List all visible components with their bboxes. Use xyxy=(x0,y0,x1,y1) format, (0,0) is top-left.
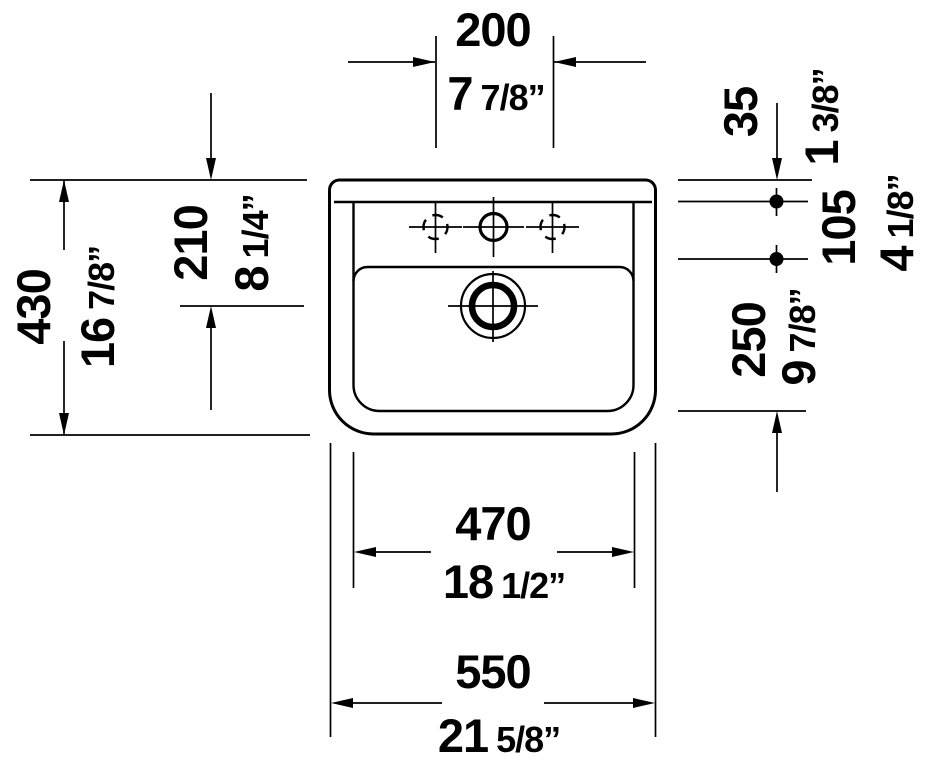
tap-holes xyxy=(409,197,579,257)
arrow-left-icon xyxy=(354,547,376,557)
dim-250-mm: 250 xyxy=(722,302,775,377)
dim-430-mm: 430 xyxy=(7,269,60,344)
arrow-right-icon xyxy=(413,57,435,67)
dim-210-inch: 81/4” xyxy=(225,194,278,291)
dim-fixing-to-bottom: 250 97/8” xyxy=(678,288,825,492)
dim-top-offset: 35 13/8” xyxy=(678,68,848,180)
dim-200-inch: 77/8” xyxy=(447,67,544,120)
arrow-down-icon xyxy=(772,158,782,180)
dim-430-inch: 167/8” xyxy=(71,246,124,368)
dim-550-mm: 550 xyxy=(455,645,530,698)
dim-105-inch: 41/8” xyxy=(870,174,923,271)
dim-fixing-holes: 105 41/8” xyxy=(678,174,923,273)
arrow-right-icon xyxy=(612,547,634,557)
fixing-dot-bottom xyxy=(770,252,784,266)
drain-overflow xyxy=(448,271,538,342)
dim-bowl-width: 470 181/2” xyxy=(354,452,635,608)
fixing-line-top xyxy=(678,188,808,216)
dim-210-mm: 210 xyxy=(164,205,217,280)
dim-470-inch: 181/2” xyxy=(443,555,565,608)
fixing-line-bottom xyxy=(678,245,808,273)
dim-35-mm: 35 xyxy=(714,87,767,137)
arrow-up-icon xyxy=(59,180,69,202)
arrow-up-icon xyxy=(772,411,782,433)
technical-drawing-page: 200 77/8” 430 167/8” 210 81/4” 35 13/8” xyxy=(0,0,930,767)
arrow-down-icon xyxy=(59,413,69,435)
arrow-right-icon xyxy=(633,698,655,708)
dim-tap-spacing: 200 77/8” xyxy=(348,3,646,148)
arrow-left-icon xyxy=(554,57,576,67)
dim-470-mm: 470 xyxy=(455,497,530,550)
dim-105-mm: 105 xyxy=(812,190,865,265)
fixing-dot-top xyxy=(770,195,784,209)
arrow-down-icon xyxy=(206,158,216,180)
dim-550-inch: 215/8” xyxy=(438,709,560,762)
tap-hole-left xyxy=(409,201,462,253)
washbasin-technical-drawing: 200 77/8” 430 167/8” 210 81/4” 35 13/8” xyxy=(0,0,930,767)
dim-rim-to-drain: 210 81/4” xyxy=(164,93,304,410)
dim-35-inch: 13/8” xyxy=(795,68,848,165)
arrow-left-icon xyxy=(331,698,353,708)
dim-250-inch: 97/8” xyxy=(772,288,825,385)
tap-hole-right xyxy=(526,201,579,253)
tap-hole-center xyxy=(463,197,524,257)
arrow-up-icon xyxy=(206,306,216,328)
dim-200-mm: 200 xyxy=(455,3,530,56)
